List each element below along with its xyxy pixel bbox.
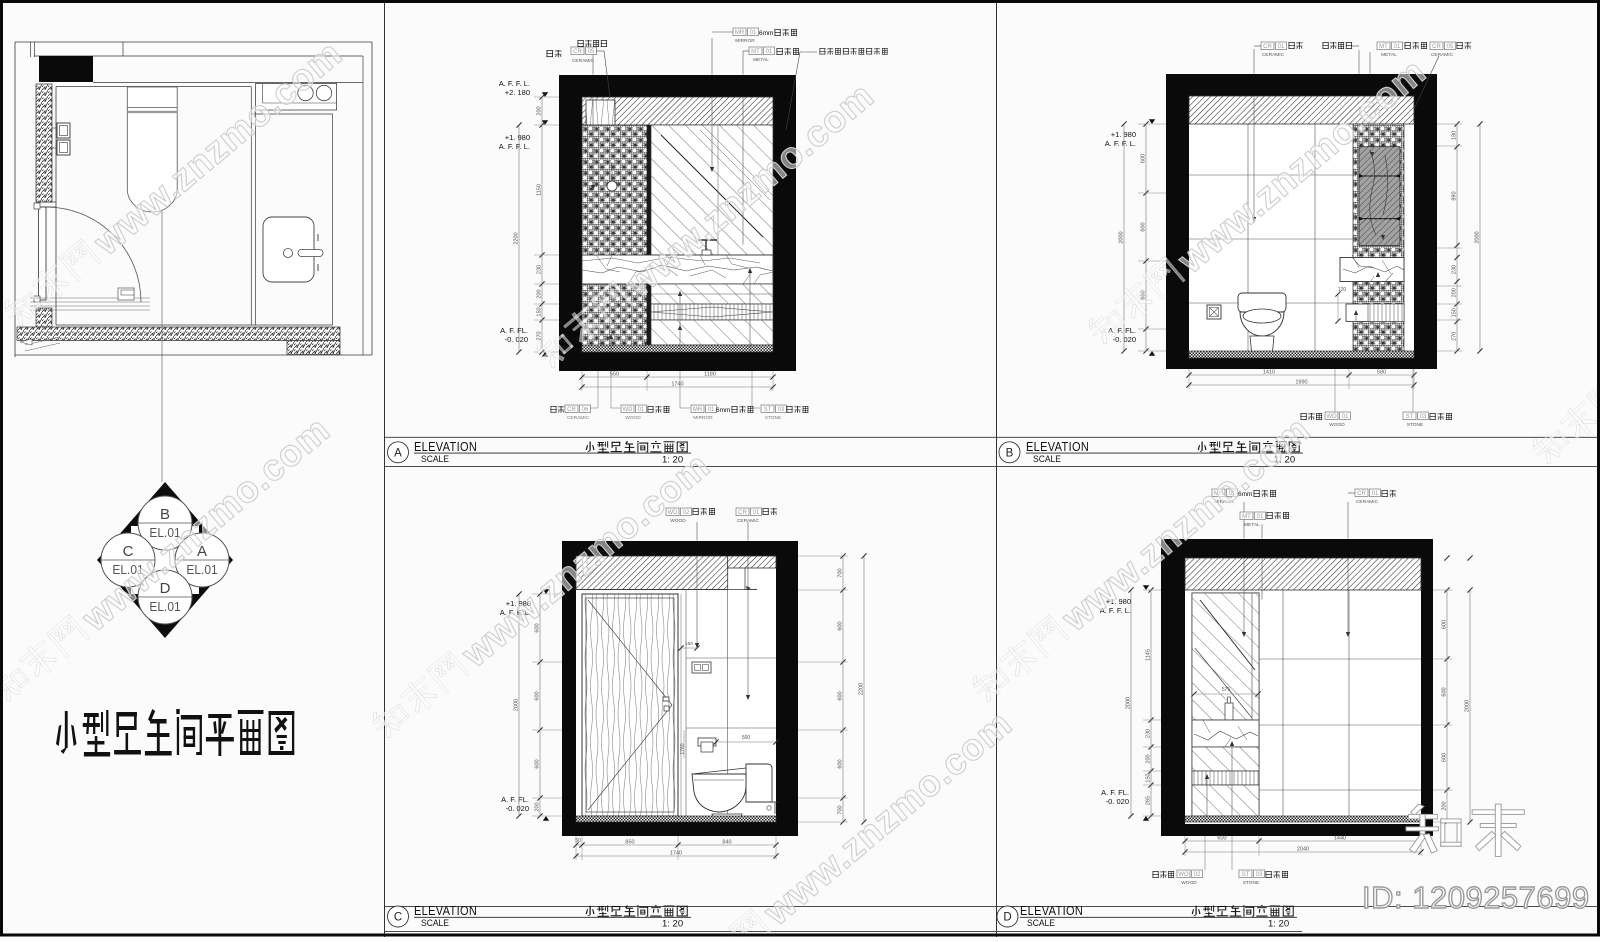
- svg-text:WOOD: WOOD: [1181, 880, 1197, 886]
- svg-text:A: A: [394, 447, 402, 459]
- svg-text:270: 270: [1452, 332, 1458, 341]
- svg-text:700: 700: [838, 568, 844, 577]
- svg-text:01: 01: [1372, 491, 1379, 497]
- svg-text:1: 20: 1: 20: [1268, 919, 1289, 930]
- svg-text:CERAMIC: CERAMIC: [1356, 499, 1379, 505]
- svg-text:600: 600: [1141, 154, 1147, 163]
- svg-text:ELEVATION: ELEVATION: [414, 903, 477, 918]
- svg-text:ID: 1209257699: ID: 1209257699: [1362, 880, 1590, 915]
- svg-text:A. F. FL.: A. F. FL.: [500, 326, 528, 335]
- svg-text:MT: MT: [751, 49, 760, 55]
- svg-text:B: B: [1006, 447, 1014, 459]
- svg-text:1150: 1150: [537, 184, 543, 196]
- svg-text:01: 01: [750, 30, 757, 36]
- svg-text:A. F. FL.: A. F. FL.: [501, 795, 529, 804]
- svg-text:-0. 020: -0. 020: [505, 335, 528, 344]
- svg-text:EL.01: EL.01: [186, 563, 217, 578]
- svg-text:1440: 1440: [1334, 836, 1346, 842]
- svg-text:200: 200: [1146, 754, 1152, 763]
- svg-text:600: 600: [838, 691, 844, 700]
- svg-text:CR: CR: [1357, 491, 1366, 497]
- svg-text:CR: CR: [1432, 44, 1441, 50]
- svg-text:600: 600: [1442, 620, 1448, 629]
- svg-text:CERAMIC: CERAMIC: [737, 518, 760, 524]
- svg-text:580: 580: [1377, 370, 1386, 376]
- svg-text:1990: 1990: [1295, 380, 1307, 386]
- svg-text:2000: 2000: [1475, 231, 1481, 243]
- svg-text:05: 05: [588, 49, 595, 55]
- svg-text:1410: 1410: [1263, 370, 1275, 376]
- svg-text:CR: CR: [573, 49, 582, 55]
- svg-text:METAL: METAL: [1381, 52, 1397, 58]
- svg-text:+1. 980: +1. 980: [1111, 130, 1136, 139]
- svg-text:270: 270: [537, 331, 543, 340]
- svg-text:METAL: METAL: [753, 57, 769, 63]
- svg-text:01: 01: [1342, 414, 1349, 420]
- svg-text:SCALE: SCALE: [421, 918, 449, 928]
- svg-text:180: 180: [1452, 131, 1458, 140]
- svg-text:STONE: STONE: [765, 415, 781, 421]
- svg-text:200: 200: [1442, 801, 1448, 810]
- svg-text:B: B: [160, 506, 170, 523]
- svg-text:1: 20: 1: 20: [662, 919, 683, 930]
- svg-text:01: 01: [1278, 44, 1285, 50]
- svg-text:03: 03: [1256, 872, 1263, 878]
- svg-text:550: 550: [610, 372, 619, 378]
- svg-text:2200: 2200: [859, 683, 865, 695]
- svg-text:STONE: STONE: [1407, 422, 1423, 428]
- svg-text:600: 600: [535, 691, 541, 700]
- svg-text:WD: WD: [623, 407, 634, 413]
- svg-text:230: 230: [1146, 729, 1152, 738]
- svg-text:600: 600: [1442, 753, 1448, 762]
- svg-text:2000: 2000: [514, 699, 520, 711]
- svg-text:1740: 1740: [671, 382, 683, 388]
- svg-text:01: 01: [1394, 44, 1401, 50]
- svg-text:-0. 020: -0. 020: [506, 804, 529, 813]
- svg-text:A. F. FL.: A. F. FL.: [1101, 788, 1129, 797]
- svg-text:ELEVATION: ELEVATION: [414, 439, 477, 454]
- svg-text:MIRROR: MIRROR: [693, 415, 713, 421]
- svg-text:A. F. F. L.: A. F. F. L.: [499, 79, 530, 88]
- svg-text:+2. 180: +2. 180: [505, 88, 530, 97]
- svg-text:A. F. F. L.: A. F. F. L.: [499, 142, 530, 151]
- svg-text:600: 600: [535, 759, 541, 768]
- svg-text:ELEVATION: ELEVATION: [1026, 439, 1089, 454]
- svg-text:2000: 2000: [1465, 700, 1471, 712]
- svg-text:D: D: [1003, 912, 1011, 924]
- svg-text:EL.01: EL.01: [149, 600, 180, 615]
- svg-text:850: 850: [625, 840, 634, 846]
- svg-text:6mm: 6mm: [759, 30, 773, 37]
- svg-text:01: 01: [638, 407, 645, 413]
- svg-text:CR: CR: [1263, 44, 1272, 50]
- svg-text:CR: CR: [567, 407, 576, 413]
- svg-text:SCALE: SCALE: [1033, 454, 1061, 464]
- svg-text:1180: 1180: [704, 372, 716, 378]
- svg-text:200: 200: [1452, 288, 1458, 297]
- svg-text:890: 890: [1452, 191, 1458, 200]
- svg-text:MR: MR: [735, 30, 745, 36]
- svg-text:C: C: [394, 912, 402, 924]
- svg-text:CR: CR: [738, 510, 747, 516]
- svg-text:CERAMIC: CERAMIC: [567, 415, 590, 421]
- svg-text:01: 01: [708, 407, 715, 413]
- svg-text:05: 05: [1447, 44, 1454, 50]
- svg-text:CERAMIC: CERAMIC: [572, 58, 595, 64]
- svg-text:06: 06: [582, 407, 589, 413]
- svg-text:CERAMIC: CERAMIC: [1431, 52, 1454, 58]
- svg-text:03: 03: [778, 407, 785, 413]
- svg-text:SCALE: SCALE: [1027, 918, 1055, 928]
- svg-text:MT: MT: [1242, 514, 1251, 520]
- svg-text:200: 200: [537, 289, 543, 298]
- svg-text:03: 03: [1420, 414, 1427, 420]
- svg-text:WOOD: WOOD: [1329, 422, 1345, 428]
- svg-text:METAL: METAL: [1244, 522, 1260, 528]
- svg-text:575: 575: [1222, 687, 1231, 693]
- svg-text:120: 120: [1338, 287, 1347, 293]
- svg-text:50: 50: [575, 838, 581, 844]
- svg-text:ST: ST: [1242, 872, 1250, 878]
- svg-text:2040: 2040: [1297, 847, 1309, 853]
- svg-text:SCALE: SCALE: [421, 454, 449, 464]
- svg-text:MIRROR: MIRROR: [735, 38, 755, 44]
- svg-text:230: 230: [1452, 265, 1458, 274]
- svg-text:-0. 020: -0. 020: [1106, 797, 1129, 806]
- svg-text:150: 150: [537, 307, 543, 316]
- svg-text:200: 200: [535, 802, 541, 811]
- svg-text:700: 700: [838, 805, 844, 814]
- svg-text:MT: MT: [1379, 44, 1388, 50]
- svg-text:150: 150: [1146, 773, 1152, 782]
- svg-text:1780: 1780: [680, 743, 686, 754]
- svg-text:01: 01: [1257, 514, 1264, 520]
- svg-text:01: 01: [753, 510, 760, 516]
- svg-text:CERAMIC: CERAMIC: [1262, 52, 1285, 58]
- svg-text:600: 600: [838, 621, 844, 630]
- svg-text:500: 500: [742, 735, 751, 741]
- svg-text:840: 840: [722, 840, 731, 846]
- svg-text:+1. 980: +1. 980: [505, 133, 530, 142]
- svg-text:200: 200: [537, 106, 543, 115]
- svg-text:A. F. F. L.: A. F. F. L.: [1105, 139, 1136, 148]
- svg-text:WO: WO: [1178, 872, 1189, 878]
- svg-text:MR: MR: [693, 407, 703, 413]
- svg-text:-0. 020: -0. 020: [1113, 335, 1136, 344]
- svg-text:1145: 1145: [1146, 649, 1152, 661]
- svg-text:02: 02: [1194, 872, 1201, 878]
- svg-text:WOOD: WOOD: [625, 415, 641, 421]
- svg-text:02: 02: [683, 510, 690, 516]
- svg-text:ST: ST: [764, 407, 772, 413]
- svg-text:600: 600: [1217, 836, 1226, 842]
- svg-text:600: 600: [1442, 687, 1448, 696]
- svg-text:2200: 2200: [514, 232, 520, 244]
- svg-text:C: C: [123, 543, 134, 560]
- svg-text:600: 600: [838, 759, 844, 768]
- svg-text:265: 265: [1146, 796, 1152, 805]
- svg-text:1740: 1740: [670, 851, 682, 857]
- svg-text:150: 150: [685, 641, 693, 647]
- svg-text:WO: WO: [1326, 414, 1337, 420]
- svg-text:2000: 2000: [1119, 231, 1125, 243]
- svg-text:230: 230: [537, 265, 543, 274]
- svg-text:WOOD: WOOD: [670, 518, 686, 524]
- svg-text:2000: 2000: [1126, 697, 1132, 709]
- svg-text:6mm: 6mm: [716, 407, 730, 414]
- svg-text:ST: ST: [1406, 414, 1414, 420]
- svg-text:01: 01: [766, 49, 773, 55]
- svg-text:ELEVATION: ELEVATION: [1020, 903, 1083, 918]
- svg-text:STONE: STONE: [1243, 880, 1259, 886]
- svg-text:150: 150: [1452, 308, 1458, 317]
- svg-text:600: 600: [1141, 222, 1147, 231]
